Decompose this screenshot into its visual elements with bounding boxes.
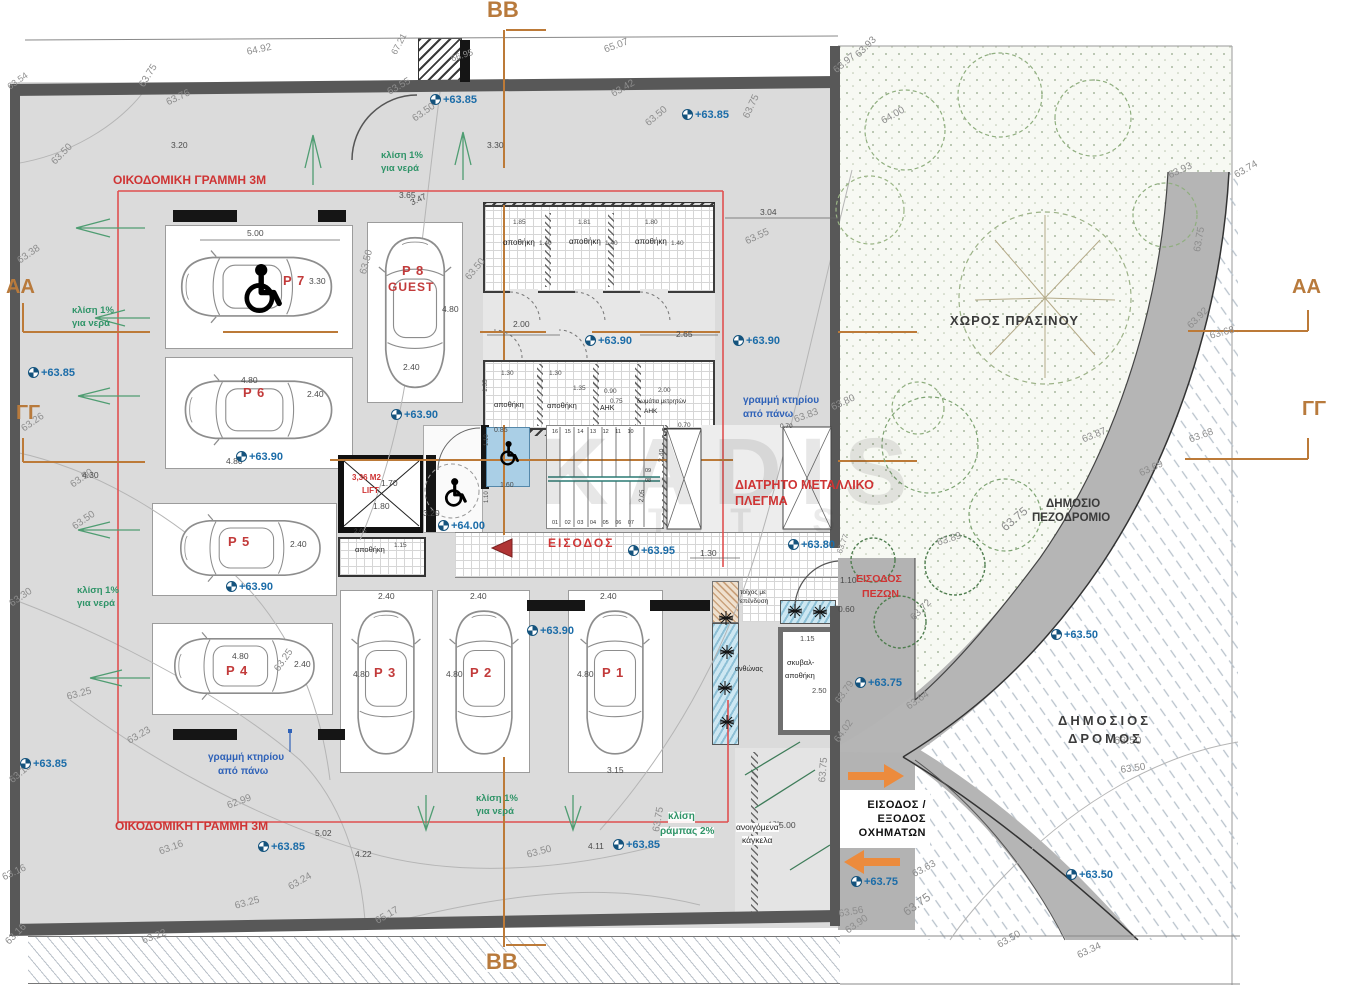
corridor-area: [483, 293, 715, 360]
parking-spot-p6: [165, 357, 353, 469]
parking-spot-p1: [568, 590, 663, 773]
watermark-sub: T T S: [648, 502, 861, 541]
planter-top: [780, 600, 836, 624]
parking-spot-p2: [437, 590, 530, 773]
clad-wall: [712, 581, 739, 623]
parking-spot-p4: [152, 623, 333, 715]
accessible-waiting-cell: [486, 427, 530, 487]
bottom-road-strip: [28, 936, 840, 984]
parking-spot-p7: [165, 225, 353, 349]
storage-door-gap: [510, 289, 538, 294]
parking-spot-p3: [340, 590, 433, 773]
storage-divider-wall: [608, 213, 614, 287]
storage-block-top: [483, 205, 715, 293]
ramp-area: [735, 748, 835, 920]
parking-spot-p5: [152, 503, 337, 596]
lobby-area: [423, 425, 483, 533]
storage-door-gap: [640, 289, 668, 294]
site-plan-drawing: KADIS T T S ΕΙΣΟΔΟΣ / ΕΞΟΔΟΣ ΟΧΗΜΑΤΩΝ 16…: [0, 0, 1354, 986]
flowerbed-strip: [712, 623, 739, 745]
storage-divider-wall: [545, 213, 551, 287]
top-hatched-box: [418, 38, 462, 82]
storage-divider-wall: [593, 364, 599, 426]
ramp-railing: [751, 752, 758, 920]
lift-shaft: [338, 455, 426, 533]
storage-under-lift: [338, 537, 426, 577]
parking-spot-p8: [367, 222, 463, 403]
storage-divider-wall: [635, 364, 641, 426]
storage-divider-wall: [537, 364, 543, 426]
storage-door-gap: [575, 289, 603, 294]
garbage-room: [778, 627, 838, 735]
